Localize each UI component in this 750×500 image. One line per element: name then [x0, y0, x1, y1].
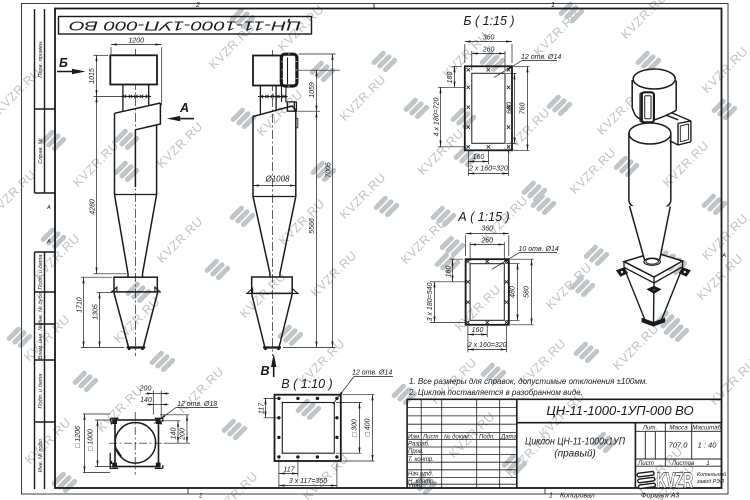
svg-text:Пров.: Пров. [408, 449, 424, 455]
svg-text:760: 760 [520, 103, 527, 115]
svg-text:А: А [46, 205, 51, 211]
svg-text:□ 1000: □ 1000 [87, 429, 94, 451]
svg-text:4 x 180=720: 4 x 180=720 [433, 98, 440, 137]
svg-text:200: 200 [139, 386, 152, 393]
svg-text:Утв.: Утв. [407, 484, 422, 490]
svg-text:160: 160 [472, 327, 484, 334]
svg-text:3 x 180=540: 3 x 180=540 [427, 283, 434, 322]
svg-text:Листов: Листов [671, 460, 695, 467]
svg-text:580: 580 [524, 286, 531, 298]
svg-text:1710: 1710 [76, 297, 83, 313]
svg-text:1. Все размеры для справок, до: 1. Все размеры для справок, допустимые о… [409, 377, 648, 386]
svg-text:2 x 160=320: 2 x 160=320 [467, 342, 507, 349]
svg-text:ЦН-11-1000-1УП-000 ВО: ЦН-11-1000-1УП-000 ВО [69, 19, 301, 33]
svg-text:160: 160 [473, 154, 485, 161]
svg-text:360: 360 [481, 226, 493, 233]
svg-text:2: 2 [195, 2, 200, 9]
svg-text:Изм.: Изм. [408, 435, 421, 441]
svg-text:Лист: Лист [637, 460, 654, 467]
svg-text:117: 117 [258, 402, 265, 414]
svg-text:Масштаб: Масштаб [692, 424, 721, 431]
svg-text:Т. контр.: Т. контр. [408, 457, 434, 463]
svg-text:1305: 1305 [92, 304, 99, 320]
svg-text:480: 480 [510, 286, 517, 298]
svg-text:Взам. инв. №: Взам. инв. № [38, 325, 44, 360]
svg-text:Котельный: Котельный [697, 471, 726, 478]
svg-text:1: 1 [551, 2, 555, 9]
svg-text:1: 1 [706, 460, 709, 467]
svg-text:Инв. № дубл.: Инв. № дубл. [38, 291, 44, 325]
svg-text:180: 180 [447, 72, 454, 84]
svg-text:Подп. и дата: Подп. и дата [38, 254, 44, 289]
svg-text:660: 660 [507, 102, 514, 114]
svg-text:№ докум.: № докум. [444, 434, 470, 441]
svg-text:Разраб.: Разраб. [408, 442, 430, 448]
svg-text:ЦН-11-1000-1УП-000 ВО: ЦН-11-1000-1УП-000 ВО [546, 403, 693, 418]
svg-text:А: А [46, 239, 51, 245]
svg-text:260: 260 [480, 238, 493, 245]
svg-text:1059: 1059 [309, 82, 316, 98]
svg-text:260: 260 [482, 46, 495, 53]
svg-text:Циклон ЦН-11-1000х1УП: Циклон ЦН-11-1000х1УП [525, 437, 626, 448]
svg-text:3 x 117=350: 3 x 117=350 [289, 478, 327, 485]
svg-text:Б: Б [59, 56, 68, 70]
svg-text:2. Циклон поставляется в разоб: 2. Циклон поставляется в разобранном вид… [408, 388, 583, 397]
svg-text:Копировал: Копировал [560, 493, 595, 500]
svg-text:□ 1206: □ 1206 [75, 426, 82, 448]
svg-text:□ 300: □ 300 [352, 419, 359, 437]
svg-text:В: В [261, 364, 270, 378]
svg-text:200: 200 [180, 428, 187, 441]
svg-text:4280: 4280 [89, 199, 96, 215]
svg-text:12 отв. Ø14: 12 отв. Ø14 [521, 54, 561, 61]
svg-text:360: 360 [483, 35, 495, 42]
svg-text:12 отв. Ø14: 12 отв. Ø14 [352, 370, 392, 377]
svg-text:Нач.отд.: Нач.отд. [408, 472, 433, 478]
svg-text:Б ( 1:15 ): Б ( 1:15 ) [463, 14, 514, 28]
svg-text:Масса: Масса [669, 424, 688, 431]
svg-text:Инв. № подл.: Инв. № подл. [38, 438, 44, 473]
svg-text:завод РЭП: завод РЭП [696, 479, 724, 485]
svg-text:1015: 1015 [89, 68, 96, 84]
svg-text:А ( 1:15 ): А ( 1:15 ) [457, 210, 509, 224]
svg-text:5566: 5566 [309, 218, 316, 234]
svg-text:117: 117 [283, 467, 295, 474]
svg-text:В ( 1:10 ): В ( 1:10 ) [281, 377, 332, 391]
svg-text:7005: 7005 [325, 162, 332, 178]
svg-text:180: 180 [445, 266, 452, 278]
svg-text:140: 140 [171, 428, 178, 440]
svg-text:Формат А3: Формат А3 [641, 493, 679, 500]
svg-text:12 отв. Ø18: 12 отв. Ø18 [177, 401, 217, 408]
svg-text:1: 1 [549, 493, 553, 500]
svg-text:□ 400: □ 400 [365, 418, 372, 436]
svg-text:Лит.: Лит. [642, 424, 658, 431]
svg-text:(правый): (правый) [554, 449, 595, 460]
svg-text:Лист: Лист [422, 435, 438, 441]
svg-text:1200: 1200 [129, 37, 145, 44]
svg-text:140: 140 [140, 397, 152, 404]
svg-text:Дата: Дата [500, 435, 517, 441]
svg-text:KVZR: KVZR [657, 470, 694, 493]
svg-text:Справ. №: Справ. № [38, 138, 44, 163]
svg-text:А: А [179, 101, 189, 115]
svg-text:А: А [721, 253, 726, 259]
svg-text:Перв. примен.: Перв. примен. [38, 40, 44, 77]
svg-text:707,0: 707,0 [669, 441, 689, 450]
svg-text:Подп.: Подп. [479, 435, 495, 441]
svg-text:Подп. и дата: Подп. и дата [38, 373, 44, 408]
svg-text:2 x 160=320: 2 x 160=320 [468, 166, 508, 173]
svg-text:Ø1008: Ø1008 [264, 175, 290, 184]
svg-text:10 отв. Ø14: 10 отв. Ø14 [519, 246, 559, 253]
svg-text:1 : 40: 1 : 40 [698, 441, 718, 450]
